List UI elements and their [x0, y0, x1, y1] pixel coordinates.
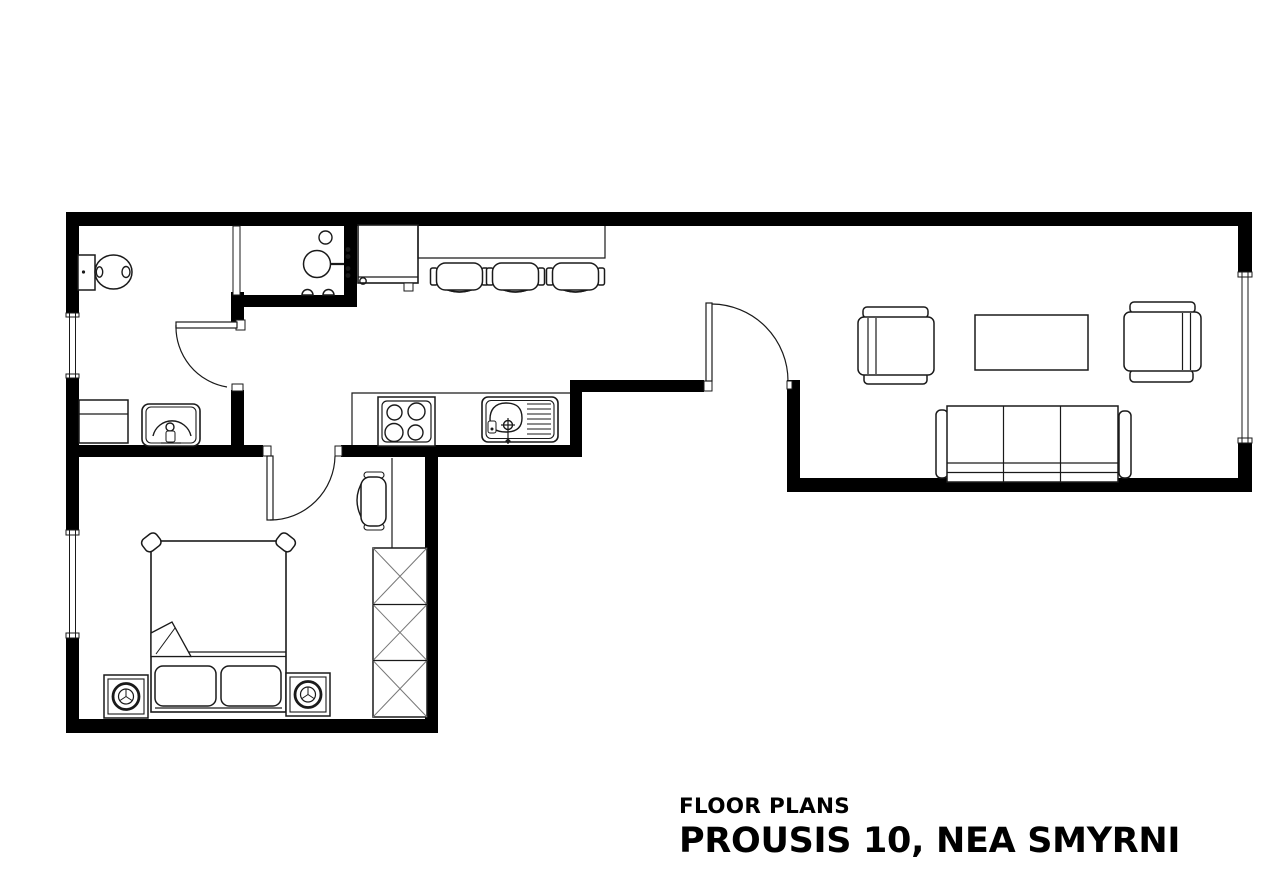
- caption-title: PROUSIS 10, NEA SMYRNI: [679, 820, 1180, 864]
- shower-head: [304, 251, 331, 278]
- wall-segment: [66, 212, 79, 313]
- faucet-handle: [346, 247, 351, 252]
- wall-segment: [66, 638, 79, 733]
- door-jamb: [263, 446, 271, 456]
- wall-segment: [1238, 212, 1252, 272]
- bar-chair-icon: [487, 263, 545, 292]
- window: [66, 313, 79, 378]
- toilet-bowl: [95, 255, 132, 289]
- armrest: [1119, 411, 1131, 478]
- double-bed-icon: [140, 531, 298, 712]
- floor-plan-drawing: [0, 0, 1267, 882]
- armrest: [1130, 370, 1193, 382]
- floor-plan-stage: [0, 0, 1267, 882]
- door-swing-arc: [712, 304, 788, 381]
- wardrobe-icon: [373, 548, 427, 717]
- door-jamb: [335, 446, 342, 456]
- wall-segment: [66, 212, 1252, 226]
- coffee-table-icon: [975, 315, 1088, 370]
- washbasin-icon: [142, 404, 200, 446]
- bar-chairs: [431, 263, 605, 292]
- window: [1238, 272, 1252, 443]
- wall-segment: [66, 719, 438, 733]
- door-jamb: [704, 381, 712, 391]
- wall-segment: [344, 226, 357, 295]
- toilet-tank: [78, 255, 95, 290]
- armchair-icon: [1124, 302, 1201, 382]
- shower-partition: [233, 226, 240, 295]
- desk-chair-icon: [357, 472, 386, 530]
- living-room-door: [704, 303, 792, 391]
- armchair-body: [858, 317, 934, 375]
- pillow-icon: [221, 666, 281, 706]
- faucet-handle: [346, 266, 351, 271]
- cabinet-icon: [79, 400, 128, 443]
- door-leaf: [176, 322, 237, 328]
- wall-segment: [582, 380, 704, 392]
- bathroom-door: [176, 320, 245, 387]
- nightstand-lamp-icon: [104, 675, 148, 718]
- kitchen-sink-icon: [482, 397, 558, 444]
- nightstand-lamp-icon: [286, 673, 330, 716]
- door-jamb: [232, 384, 243, 391]
- faucet-handle: [346, 254, 351, 259]
- wall-segment: [66, 378, 79, 530]
- armchair-icon: [858, 307, 934, 384]
- caption-subtitle: FLOOR PLANS: [679, 794, 1180, 820]
- faucet-handle: [346, 273, 351, 278]
- sofa-body: [947, 406, 1118, 482]
- fridge-icon: [358, 225, 418, 291]
- bedroom-door: [263, 446, 342, 520]
- wall-segment: [341, 445, 582, 457]
- breakfast-counter-icon: [418, 226, 605, 258]
- wall-segment: [231, 390, 244, 445]
- armrest: [936, 410, 948, 478]
- caption: FLOOR PLANS PROUSIS 10, NEA SMYRNI: [679, 794, 1180, 864]
- sofa-icon: [936, 406, 1131, 482]
- wall-segment: [787, 380, 800, 492]
- door-swing-arc: [176, 325, 227, 387]
- window: [66, 530, 79, 638]
- door-jamb: [787, 381, 792, 389]
- door-leaf: [267, 456, 273, 520]
- wall-segment: [231, 295, 357, 307]
- drainboard: [527, 404, 551, 434]
- door-leaf: [706, 303, 712, 381]
- door-swing-arc: [270, 456, 335, 520]
- armchair-body: [1124, 312, 1201, 371]
- toilet-icon: [78, 255, 132, 290]
- bar-chair-icon: [431, 263, 489, 292]
- shower-icon: [302, 231, 350, 295]
- pillow-icon: [155, 666, 216, 706]
- cooktop-icon: [378, 397, 435, 446]
- bar-chair-icon: [547, 263, 605, 292]
- wall-segment: [231, 292, 244, 323]
